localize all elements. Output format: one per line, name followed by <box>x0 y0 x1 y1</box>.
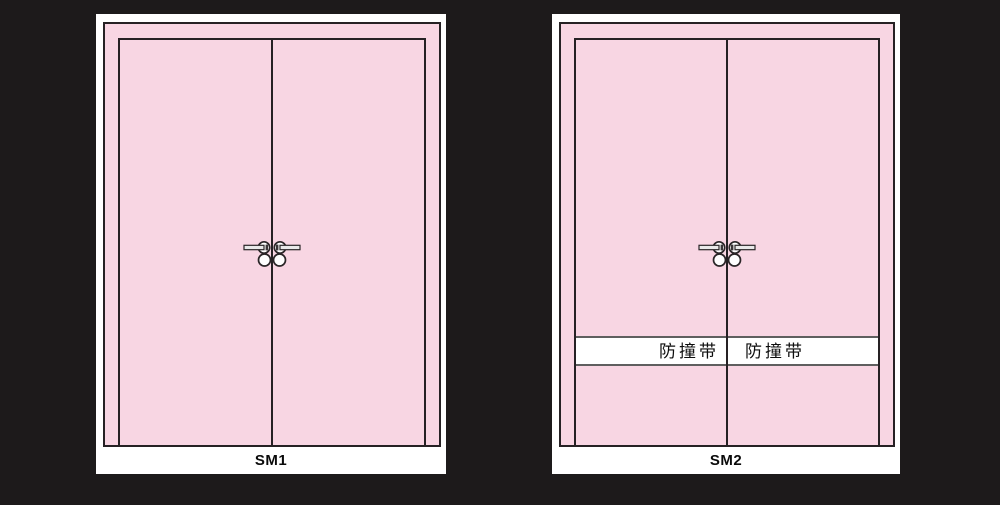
door-frame: 防撞带 防撞带 <box>559 22 895 447</box>
door-leaves <box>118 38 426 445</box>
lever-handle-lock-icon <box>695 238 759 268</box>
door-handle <box>695 238 759 268</box>
door-frame <box>103 22 441 447</box>
door-card-sm2: 防撞带 防撞带 SM2 <box>552 14 900 474</box>
door-label-sm2: SM2 <box>552 447 900 474</box>
bumper-strip-right-label: 防撞带 <box>727 338 878 364</box>
door-leaves: 防撞带 防撞带 <box>574 38 880 445</box>
door-handle <box>240 238 304 268</box>
lever-handle-lock-icon <box>240 238 304 268</box>
bumper-strip-left-label: 防撞带 <box>576 338 727 364</box>
door-label-sm1: SM1 <box>96 447 446 474</box>
door-card-sm1: SM1 <box>96 14 446 474</box>
